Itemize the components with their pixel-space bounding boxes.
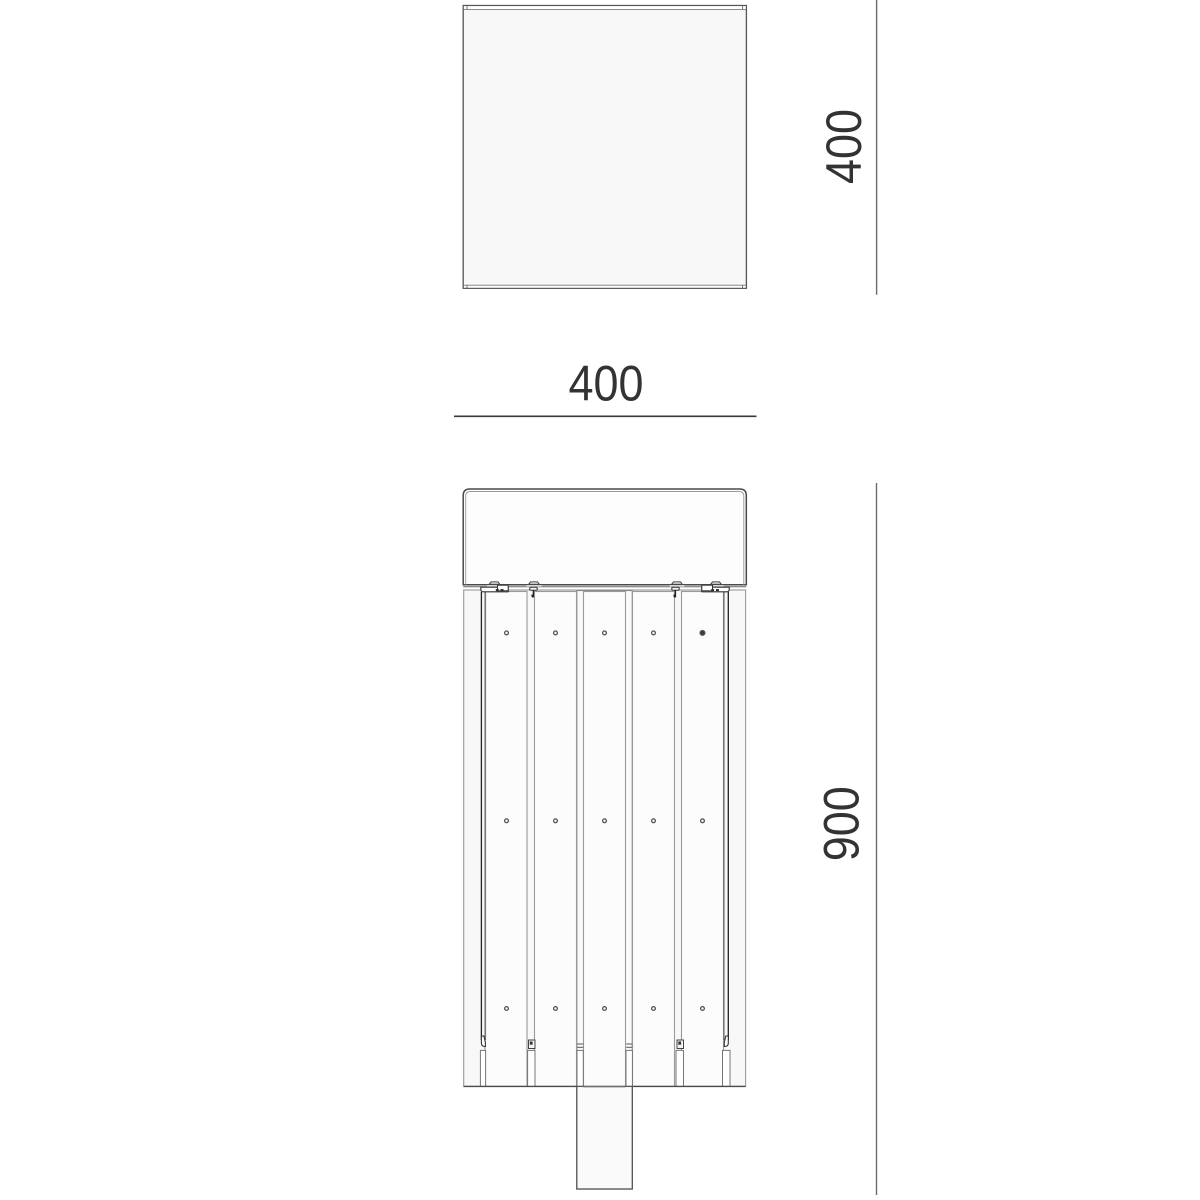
svg-text:400: 400 [569,356,644,412]
svg-text:400: 400 [817,109,873,184]
svg-text:900: 900 [814,786,870,861]
